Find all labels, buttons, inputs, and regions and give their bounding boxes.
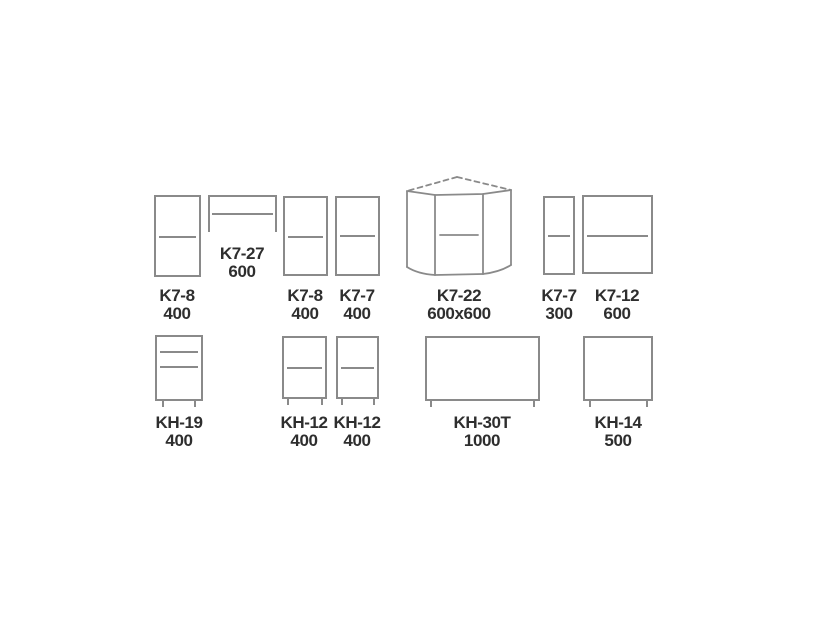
base-cabinet-kh-12-2	[336, 336, 379, 399]
door-handle-line	[288, 236, 323, 238]
bottom-right-edge	[483, 265, 511, 274]
cabinet-model: K7-27	[200, 245, 284, 263]
top-front-edge	[407, 190, 511, 195]
base-cabinet-kh-14	[583, 336, 653, 401]
bottom-left-edge	[407, 267, 435, 275]
wall-cabinet-k7-8-2	[283, 196, 328, 276]
cabinet-label: KH-19 400	[137, 414, 221, 450]
base-cabinet-kh-12-1	[282, 336, 327, 399]
cabinet-label: K7-8 400	[135, 287, 219, 323]
cabinet-foot	[287, 399, 289, 405]
cabinet-label: K7-27 600	[200, 245, 284, 281]
cabinet-size: 1000	[440, 432, 524, 450]
hood-cabinet-top-edge	[208, 195, 277, 197]
cabinet-model: K7-22	[417, 287, 501, 305]
hood-cabinet-left-edge	[208, 195, 210, 232]
top-back-edge-left	[407, 177, 457, 191]
door-handle-line	[340, 235, 375, 237]
wall-cabinet-k7-12	[582, 195, 653, 274]
cabinet-foot	[194, 401, 196, 407]
cabinet-size: 400	[315, 432, 399, 450]
cabinet-layout-diagram: K7-8 400 K7-27 600 K7-8 400 K7-7 400	[0, 0, 820, 640]
cabinet-size: 400	[135, 305, 219, 323]
cabinet-label: K7-12 600	[575, 287, 659, 323]
drawer-line	[160, 351, 198, 353]
cabinet-model: KH-14	[576, 414, 660, 432]
cabinet-size: 400	[315, 305, 399, 323]
hood-cabinet-right-edge	[275, 195, 277, 232]
top-back-edge-right	[457, 177, 511, 190]
cabinet-size: 600	[200, 263, 284, 281]
cabinet-label: K7-22 600x600	[417, 287, 501, 323]
drawer-line	[287, 367, 322, 369]
corner-cabinet-k7-22	[400, 172, 518, 282]
drawer-line	[160, 366, 198, 368]
cabinet-label: K7-7 400	[315, 287, 399, 323]
cabinet-model: KH-30T	[440, 414, 524, 432]
cabinet-label: KH-30T 1000	[440, 414, 524, 450]
cabinet-foot	[341, 399, 343, 405]
cabinet-model: KH-12	[315, 414, 399, 432]
cabinet-model: K7-7	[315, 287, 399, 305]
drawer-line	[341, 367, 374, 369]
cabinet-model: K7-8	[135, 287, 219, 305]
base-cabinet-kh-30t	[425, 336, 540, 401]
cabinet-size: 500	[576, 432, 660, 450]
cabinet-size: 600	[575, 305, 659, 323]
wall-cabinet-k7-8-1	[154, 195, 201, 277]
door-handle-line	[159, 236, 196, 238]
cabinet-foot	[430, 401, 432, 407]
wall-cabinet-k7-7-2	[543, 196, 575, 275]
cabinet-size: 400	[137, 432, 221, 450]
base-cabinet-kh-19	[155, 335, 203, 401]
wall-cabinet-k7-7-1	[335, 196, 380, 276]
cabinet-label: KH-14 500	[576, 414, 660, 450]
front-panel-bottom-edge	[435, 274, 483, 275]
hood-cabinet-panel-line	[212, 213, 273, 215]
cabinet-model: KH-19	[137, 414, 221, 432]
cabinet-foot	[646, 401, 648, 407]
cabinet-model: K7-12	[575, 287, 659, 305]
cabinet-foot	[321, 399, 323, 405]
cabinet-foot	[373, 399, 375, 405]
cabinet-size: 600x600	[417, 305, 501, 323]
cabinet-foot	[589, 401, 591, 407]
door-handle-line	[587, 235, 648, 237]
cabinet-foot	[162, 401, 164, 407]
cabinet-foot	[533, 401, 535, 407]
door-handle-line	[548, 235, 570, 237]
cabinet-label: KH-12 400	[315, 414, 399, 450]
